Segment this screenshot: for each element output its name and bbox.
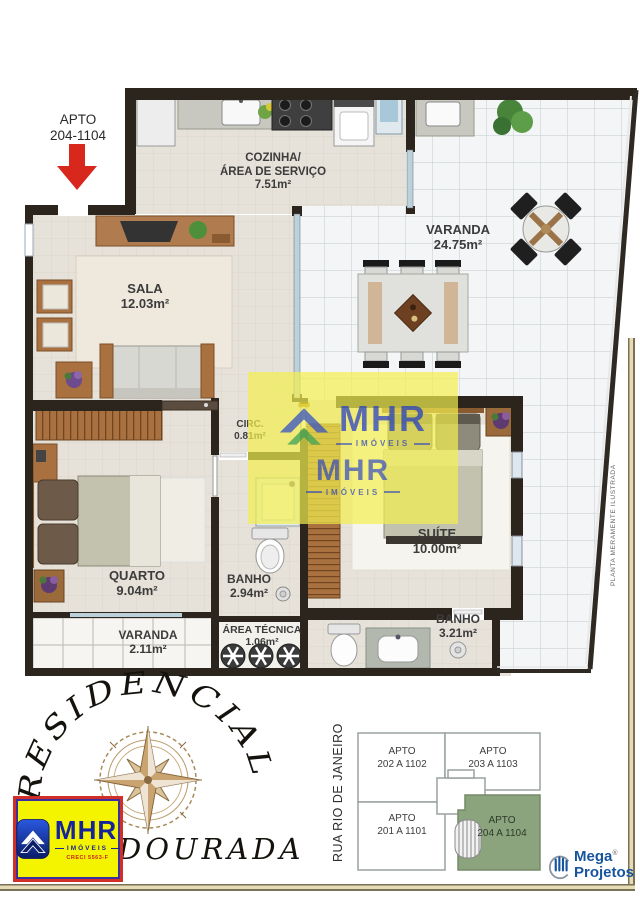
street-label: RUA RIO DE JANEIRO (331, 736, 345, 862)
room-name: BANHO (213, 572, 285, 586)
label-suite: SUÍTE 10.00m² (377, 526, 497, 557)
window-varanda-quarto (70, 613, 182, 617)
unit-line2: 204 A 1104 (460, 827, 544, 840)
room-name: ÁREA DE SERVIÇO (193, 166, 353, 180)
unit-label-204-highlighted: APTO 204 A 1104 (460, 814, 544, 840)
mhr-creci: CRECI 5563-F (55, 855, 120, 861)
wardrobe (36, 410, 162, 440)
room-area: 3.21m² (420, 626, 496, 640)
room-name: COZINHA/ (193, 152, 353, 166)
unit-line2: 203 A 1103 (446, 758, 540, 771)
label-circ: CIRC. 0.81m² (218, 419, 282, 443)
apto-callout-line2: 204-1104 (34, 128, 122, 144)
room-name: CIRC. (218, 419, 282, 431)
entry-door-gap (58, 204, 88, 216)
mega-shell-icon (546, 844, 572, 886)
room-name: VARANDA (88, 628, 208, 642)
down-arrow-icon (57, 144, 97, 190)
room-name: VARANDA (398, 222, 518, 237)
window-sala (25, 224, 33, 256)
room-name: SALA (85, 281, 205, 296)
plant-icon (189, 221, 207, 239)
room-area: 9.04m² (77, 583, 197, 598)
unit-line1: APTO (446, 745, 540, 758)
residencial-text: RESIDENCIAL (12, 665, 281, 804)
unit-line1: APTO (460, 814, 544, 827)
fridge (137, 97, 175, 146)
label-banho-suite: BANHO 3.21m² (420, 612, 496, 640)
unit-label-202: APTO 202 A 1102 (358, 745, 446, 771)
apto-callout-line1: APTO (34, 112, 122, 128)
mega-projetos-logo: Mega® Projetos (546, 843, 634, 887)
room-name: BANHO (420, 612, 496, 626)
room-area: 0.81m² (218, 431, 282, 443)
registered-mark: ® (612, 850, 617, 857)
unit-line2: 201 A 1101 (358, 825, 446, 838)
tv (120, 221, 178, 242)
room-area: 2.11m² (88, 642, 208, 656)
mhr-name: MHR (55, 817, 120, 843)
sofa (100, 344, 214, 398)
suite-door-leaf (301, 405, 306, 429)
unit-label-203: APTO 203 A 1103 (446, 745, 540, 771)
label-cozinha: COZINHA/ ÁREA DE SERVIÇO 7.51m² (193, 152, 353, 193)
unit-line2: 202 A 1102 (358, 758, 446, 771)
dourada-text: DOURADA (118, 832, 304, 866)
varanda-sink (426, 102, 460, 126)
apto-callout: APTO 204-1104 (34, 112, 122, 143)
unit-label-201: APTO 201 A 1101 (358, 812, 446, 838)
label-sala: SALA 12.03m² (85, 281, 205, 312)
window-suite (512, 452, 522, 478)
label-quarto: QUARTO 9.04m² (77, 568, 197, 599)
glass-door-kitchen (407, 150, 413, 208)
planta-note: PLANTA MERAMENTE ILUSTRADA (610, 452, 617, 586)
dining-table-set (358, 260, 468, 368)
arrow-stem (69, 144, 85, 166)
armchair (37, 318, 72, 351)
unit-line1: APTO (358, 812, 446, 825)
floorplan-page: APTO 204-1104 (0, 0, 640, 900)
mega-text: Mega® Projetos (574, 849, 634, 881)
sheet-frame-bottom (0, 884, 635, 891)
room-area: 1.06m² (217, 636, 307, 648)
label-banho-social: BANHO 2.94m² (213, 572, 285, 600)
label-varanda-quarto: VARANDA 2.11m² (88, 628, 208, 656)
kitchen-sink (222, 100, 260, 125)
sliding-door-panel (162, 401, 218, 410)
room-name: QUARTO (77, 568, 197, 583)
mega-line2: Projetos (574, 865, 634, 881)
armchair (37, 280, 72, 313)
mega-line1: Mega (574, 848, 612, 865)
label-varanda: VARANDA 24.75m² (398, 222, 518, 253)
suite-furniture (302, 402, 516, 598)
label-area-tecnica: ÁREA TÉCNICA 1.06m² (217, 624, 307, 649)
svg-text:RESIDENCIAL: RESIDENCIAL (12, 665, 281, 804)
room-name: SUÍTE (377, 526, 497, 541)
mhr-subtitle: IMÓVEIS (55, 845, 120, 852)
sheet-frame-right (628, 338, 635, 884)
arrow-head (57, 166, 97, 190)
mhr-logo: MHR IMÓVEIS CRECI 5563-F (13, 796, 123, 882)
unit-line1: APTO (358, 745, 446, 758)
mhr-logo-text: MHR IMÓVEIS CRECI 5563-F (55, 817, 120, 861)
room-area: 24.75m² (398, 237, 518, 252)
drain-icon (450, 642, 466, 658)
room-area: 7.51m² (193, 179, 353, 193)
glass-door-sala (294, 214, 300, 398)
room-area: 12.03m² (85, 296, 205, 311)
quarto-door-leaf (213, 456, 217, 496)
window-suite (512, 536, 522, 566)
room-area: 2.94m² (213, 586, 285, 600)
room-area: 10.00m² (377, 541, 497, 556)
side-table (56, 362, 92, 398)
desk (33, 444, 57, 482)
mhr-house-icon (16, 815, 50, 863)
room-name: ÁREA TÉCNICA (217, 624, 307, 636)
flower-decor (34, 570, 64, 602)
